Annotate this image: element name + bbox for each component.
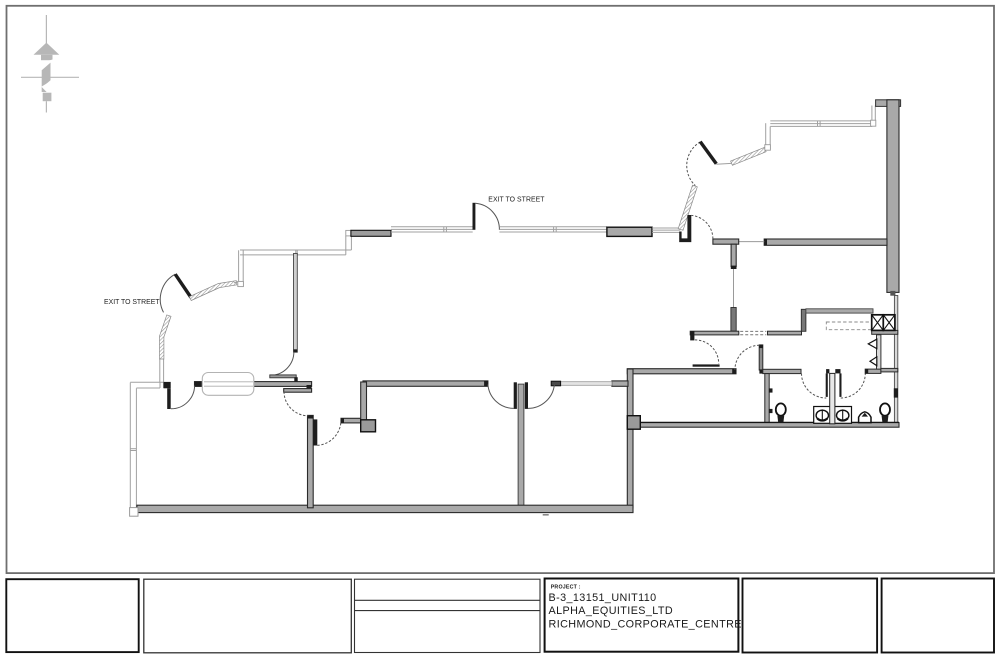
svg-text:PROJECT :: PROJECT : [551,585,581,591]
svg-text:B-3_13151_UNIT110: B-3_13151_UNIT110 [549,592,657,604]
svg-text:RICHMOND_CORPORATE_CENTRE: RICHMOND_CORPORATE_CENTRE [549,618,742,630]
svg-text:EXIT TO STREET: EXIT TO STREET [488,197,545,204]
svg-text:EXIT TO STREET: EXIT TO STREET [104,299,160,306]
svg-text:ALPHA_EQUITIES_LTD: ALPHA_EQUITIES_LTD [549,605,674,617]
